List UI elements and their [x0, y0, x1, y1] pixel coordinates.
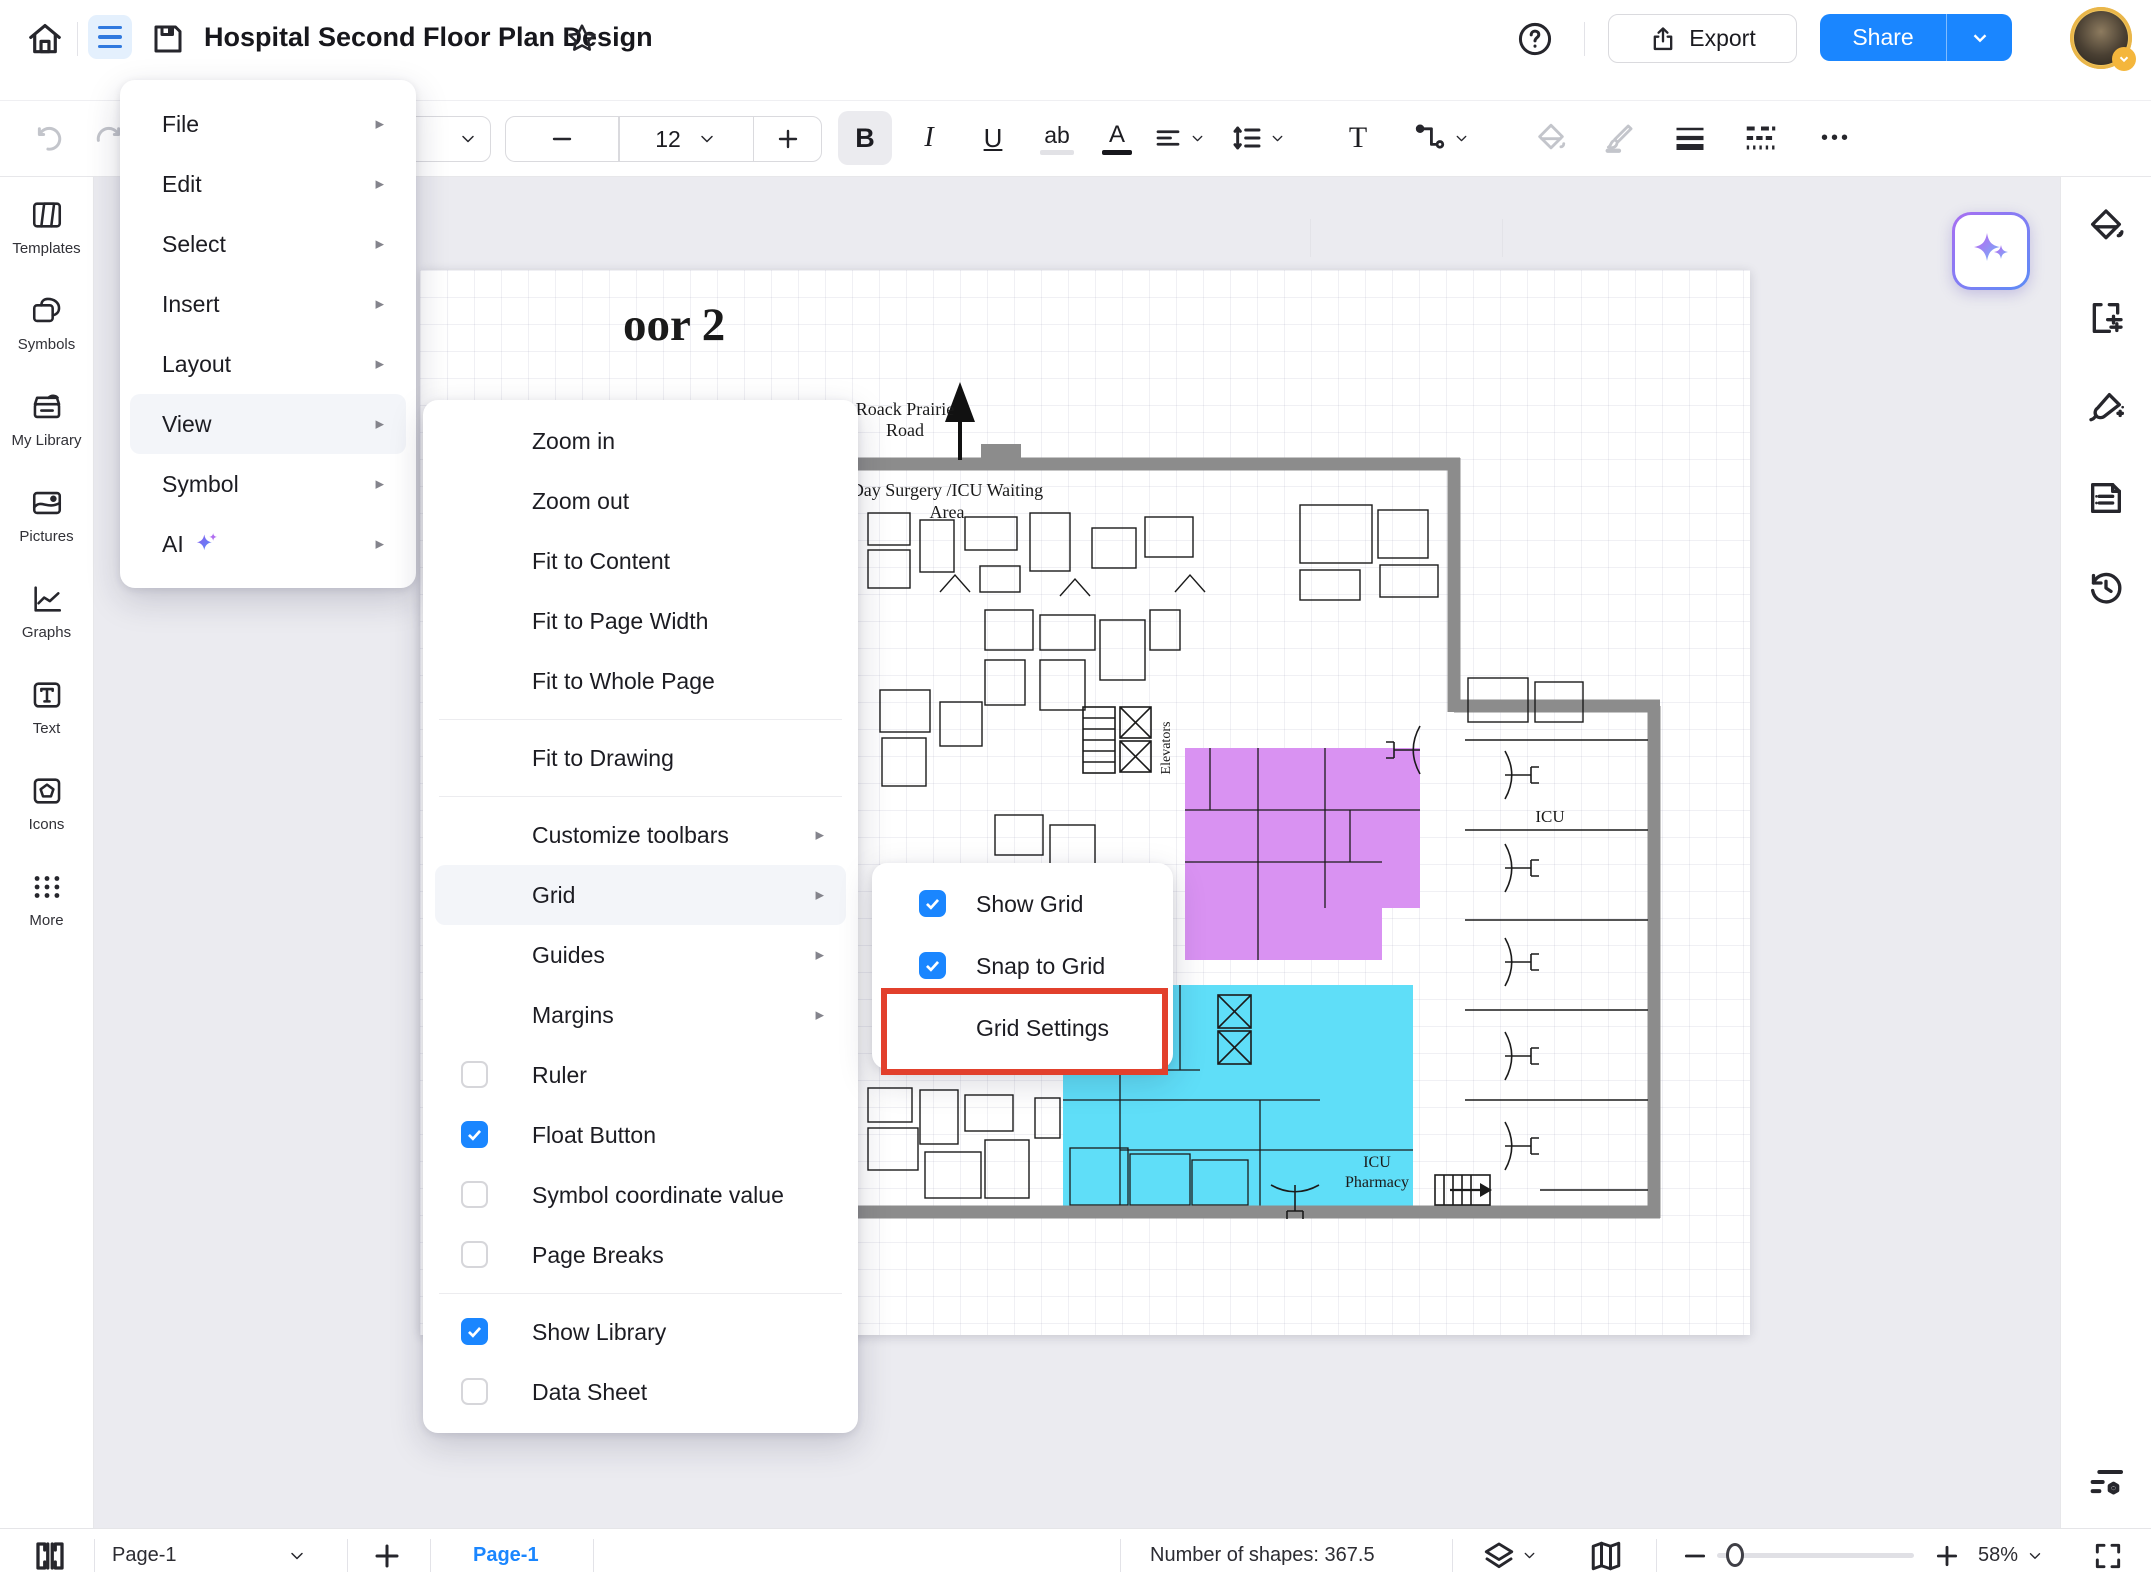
- line-weight-icon: [1672, 120, 1708, 156]
- font-size-decrease-button[interactable]: [506, 127, 618, 151]
- minus-icon: [1682, 1543, 1708, 1569]
- brush-icon: [1602, 121, 1636, 155]
- plus-icon: [776, 127, 800, 151]
- submenu-arrow-icon: ▸: [375, 414, 384, 434]
- menu-item-file[interactable]: File▸: [130, 94, 406, 154]
- highlight-color-button[interactable]: ab: [1030, 100, 1084, 176]
- annotation-highlight-box: [881, 988, 1168, 1075]
- bold-button[interactable]: B: [838, 111, 892, 165]
- road-label-1[interactable]: Roack Prairie: [856, 399, 954, 419]
- chevron-down-icon: [1969, 27, 1991, 49]
- home-icon: [26, 20, 64, 58]
- text-icon: [30, 678, 64, 712]
- history-panel-button[interactable]: [2086, 568, 2126, 608]
- pages-icon: [32, 1538, 68, 1574]
- checkbox-unchecked[interactable]: [461, 1241, 488, 1268]
- view-item-zoom-out[interactable]: Zoom out: [435, 471, 846, 531]
- font-size-increase-button[interactable]: [754, 127, 821, 151]
- sidebar-item-my-library[interactable]: My Library: [0, 390, 94, 450]
- menu-item-view[interactable]: View▸: [130, 394, 406, 454]
- view-item-margins[interactable]: Margins▸: [435, 985, 846, 1045]
- font-size-select[interactable]: 12: [620, 126, 753, 153]
- undo-icon: [33, 121, 67, 155]
- history-icon: [2086, 568, 2126, 608]
- pharmacy-label-1[interactable]: ICU: [1363, 1154, 1391, 1171]
- filter-gear-icon: [2086, 1462, 2126, 1502]
- export-label: Export: [1689, 25, 1755, 52]
- save-button[interactable]: [150, 21, 186, 57]
- text-align-button[interactable]: [1148, 100, 1210, 176]
- fill-bucket-icon: [2086, 206, 2126, 246]
- favorite-star-button[interactable]: [566, 22, 598, 54]
- icons-icon: [30, 774, 64, 808]
- symbols-icon: [30, 294, 64, 328]
- sparkle-icon: [1969, 229, 2013, 273]
- checkbox-unchecked[interactable]: [461, 1181, 488, 1208]
- elevators-label[interactable]: Elevators: [1159, 722, 1174, 775]
- chevron-down-icon: [697, 129, 717, 149]
- view-item-fit-to-page-width[interactable]: Fit to Page Width: [435, 591, 846, 651]
- view-item-float-button[interactable]: Float Button: [435, 1105, 846, 1165]
- page-settings-panel-button[interactable]: [2086, 298, 2126, 338]
- layers-icon: [1482, 1539, 1516, 1573]
- canvas-preferences-button[interactable]: [2086, 1462, 2126, 1502]
- plus-icon: [372, 1541, 402, 1571]
- fill-color-button[interactable]: [1524, 100, 1578, 176]
- zone-purple[interactable]: [1185, 748, 1420, 960]
- view-item-grid[interactable]: Grid▸: [435, 865, 846, 925]
- area-label-1[interactable]: Day Surgery /ICU Waiting: [851, 480, 1043, 500]
- toolbar-more-button[interactable]: •••: [1806, 100, 1866, 176]
- icu-label[interactable]: ICU: [1535, 807, 1564, 826]
- user-avatar[interactable]: [2070, 7, 2132, 69]
- submenu-arrow-icon: ▸: [815, 885, 824, 905]
- submenu-arrow-icon: ▸: [815, 945, 824, 965]
- view-item-ruler[interactable]: Ruler: [435, 1045, 846, 1105]
- checkbox-checked[interactable]: [461, 1121, 488, 1148]
- chevron-down-icon: [1521, 1547, 1538, 1564]
- line-spacing-icon: [1231, 122, 1263, 154]
- submenu-arrow-icon: ▸: [815, 1005, 824, 1025]
- view-item-fit-to-content[interactable]: Fit to Content: [435, 531, 846, 591]
- zoom-slider-track[interactable]: [1717, 1553, 1914, 1558]
- line-style-button[interactable]: [1592, 100, 1646, 176]
- font-size-value: 12: [655, 126, 681, 153]
- submenu-arrow-icon: ▸: [375, 174, 384, 194]
- pictures-icon: [30, 486, 64, 520]
- checkbox-unchecked[interactable]: [461, 1061, 488, 1088]
- share-button[interactable]: Share: [1820, 14, 2012, 61]
- chevron-down-icon: [458, 129, 478, 149]
- menu-divider: [439, 1293, 842, 1294]
- submenu-arrow-icon: ▸: [375, 234, 384, 254]
- text-tool-button[interactable]: T: [1330, 100, 1386, 176]
- star-icon: [566, 22, 598, 54]
- zoom-in-button[interactable]: [1934, 1529, 1960, 1581]
- view-item-show-library[interactable]: Show Library: [435, 1302, 846, 1362]
- zoom-level-value: 58%: [1978, 1544, 2018, 1567]
- sidebar-item-text[interactable]: Text: [0, 678, 94, 738]
- view-item-fit-to-drawing[interactable]: Fit to Drawing: [435, 728, 846, 788]
- sparkle-icon: [192, 529, 222, 559]
- export-icon: [1649, 25, 1677, 53]
- main-menu: File▸ Edit▸ Select▸ Insert▸ Layout▸ View…: [120, 80, 416, 588]
- italic-button[interactable]: I: [902, 100, 956, 176]
- chevron-down-icon: [287, 1546, 307, 1566]
- status-bar: Page-1 Page-1 Number of shapes: 367.5: [0, 1528, 2151, 1581]
- line-spacing-button[interactable]: [1222, 100, 1294, 176]
- minimap-button[interactable]: [1588, 1529, 1624, 1581]
- ai-assistant-float-button[interactable]: [1952, 212, 2030, 290]
- more-dots: •••: [1821, 127, 1851, 150]
- view-item-symbol-coordinate-value[interactable]: Symbol coordinate value: [435, 1165, 846, 1225]
- app-window: oor 2 Roack Prairie Road Day Surgery /IC…: [0, 0, 2151, 1581]
- checkbox-checked[interactable]: [919, 890, 946, 917]
- view-item-page-breaks[interactable]: Page Breaks: [435, 1225, 846, 1285]
- main-menu-button[interactable]: [88, 15, 132, 59]
- library-sidebar: Templates Symbols My Library Pictures Gr…: [0, 176, 94, 1528]
- help-icon: [1516, 20, 1554, 58]
- connector-icon: [1413, 121, 1447, 155]
- submenu-arrow-icon: ▸: [375, 534, 384, 554]
- align-icon: [1153, 123, 1183, 153]
- grid-item-show-grid[interactable]: Show Grid: [872, 873, 1173, 935]
- road-label-2[interactable]: Road: [886, 420, 924, 440]
- minus-icon: [550, 127, 574, 151]
- chevron-down-icon: [1453, 130, 1470, 147]
- menu-item-ai[interactable]: AI ▸: [130, 514, 406, 574]
- sidebar-item-templates[interactable]: Templates: [0, 198, 94, 258]
- share-label: Share: [1820, 24, 1946, 51]
- sidebar-item-more[interactable]: More: [0, 870, 94, 930]
- checkbox-checked[interactable]: [461, 1318, 488, 1345]
- menu-item-layout[interactable]: Layout▸: [130, 334, 406, 394]
- line-weight-button[interactable]: [1662, 100, 1718, 176]
- style-cleanup-panel-button[interactable]: [2086, 388, 2126, 428]
- page-selector-dropdown[interactable]: Page-1: [112, 1529, 307, 1581]
- share-dropdown-button[interactable]: [1947, 27, 2012, 49]
- chevron-down-icon: [1269, 130, 1286, 147]
- menu-item-insert[interactable]: Insert▸: [130, 274, 406, 334]
- undo-button[interactable]: [28, 100, 72, 176]
- format-sidebar: [2060, 176, 2151, 1528]
- chevron-down-icon: [1189, 130, 1206, 147]
- sidebar-item-graphs[interactable]: Graphs: [0, 582, 94, 642]
- submenu-arrow-icon: ▸: [375, 354, 384, 374]
- pharmacy-label-2[interactable]: Pharmacy: [1345, 1174, 1409, 1191]
- page-tab-active[interactable]: Page-1: [473, 1529, 539, 1581]
- wall-doorway-bump: [981, 444, 1021, 464]
- plus-icon: [1934, 1543, 1960, 1569]
- fill-bucket-icon: [1534, 121, 1568, 155]
- menu-item-select[interactable]: Select▸: [130, 214, 406, 274]
- sidebar-item-symbols[interactable]: Symbols: [0, 294, 94, 354]
- view-submenu: Zoom in Zoom out Fit to Content Fit to P…: [423, 400, 858, 1433]
- magic-brush-icon: [2086, 388, 2126, 428]
- zoom-out-button[interactable]: [1682, 1529, 1708, 1581]
- page-selector-value: Page-1: [112, 1544, 177, 1567]
- fill-style-panel-button[interactable]: [2086, 206, 2126, 246]
- my-library-icon: [30, 390, 64, 424]
- view-item-customize-toolbars[interactable]: Customize toolbars▸: [435, 805, 846, 865]
- checkbox-unchecked[interactable]: [461, 1378, 488, 1405]
- menu-item-symbol[interactable]: Symbol▸: [130, 454, 406, 514]
- font-size-group: 12: [505, 116, 822, 162]
- fullscreen-icon: [2092, 1540, 2124, 1572]
- save-icon: [150, 21, 186, 57]
- menu-divider: [439, 796, 842, 797]
- fullscreen-button[interactable]: [2092, 1529, 2124, 1581]
- home-button[interactable]: [26, 20, 64, 58]
- menu-item-edit[interactable]: Edit▸: [130, 154, 406, 214]
- zoom-level-dropdown[interactable]: 58%: [1978, 1529, 2044, 1581]
- view-item-zoom-in[interactable]: Zoom in: [435, 411, 846, 471]
- document-list-icon: [2086, 478, 2126, 518]
- chevron-down-icon: [2026, 1547, 2044, 1565]
- area-label-2[interactable]: Area: [930, 502, 965, 522]
- submenu-arrow-icon: ▸: [815, 825, 824, 845]
- membership-badge-icon: [2112, 47, 2136, 71]
- layers-button[interactable]: [1482, 1529, 1538, 1581]
- help-button[interactable]: [1516, 20, 1554, 58]
- submenu-arrow-icon: ▸: [375, 114, 384, 134]
- templates-icon: [30, 198, 64, 232]
- plan-title[interactable]: oor 2: [623, 299, 725, 351]
- connector-button[interactable]: [1400, 100, 1482, 176]
- underline-button[interactable]: U: [966, 100, 1020, 176]
- export-button[interactable]: Export: [1608, 14, 1797, 63]
- font-color-button[interactable]: A: [1090, 100, 1144, 176]
- line-dash-icon: [1742, 119, 1780, 157]
- checkbox-checked[interactable]: [919, 952, 946, 979]
- sidebar-item-icons[interactable]: Icons: [0, 774, 94, 834]
- graphs-icon: [30, 582, 64, 616]
- line-dash-button[interactable]: [1732, 100, 1790, 176]
- data-panel-button[interactable]: [2086, 478, 2126, 518]
- view-item-data-sheet[interactable]: Data Sheet: [435, 1362, 846, 1422]
- shape-count: Number of shapes: 367.5: [1150, 1529, 1375, 1581]
- view-item-fit-to-whole-page[interactable]: Fit to Whole Page: [435, 651, 846, 711]
- zoom-slider-handle[interactable]: [1726, 1543, 1744, 1567]
- submenu-arrow-icon: ▸: [375, 294, 384, 314]
- page-settings-icon: [2086, 298, 2126, 338]
- menu-divider: [439, 719, 842, 720]
- page-overview-button[interactable]: [32, 1529, 68, 1581]
- sidebar-item-pictures[interactable]: Pictures: [0, 486, 94, 546]
- submenu-arrow-icon: ▸: [375, 474, 384, 494]
- add-page-button[interactable]: [372, 1529, 402, 1581]
- more-grid-icon: [30, 870, 64, 904]
- map-icon: [1588, 1538, 1624, 1574]
- north-arrow[interactable]: [945, 382, 975, 460]
- view-item-guides[interactable]: Guides▸: [435, 925, 846, 985]
